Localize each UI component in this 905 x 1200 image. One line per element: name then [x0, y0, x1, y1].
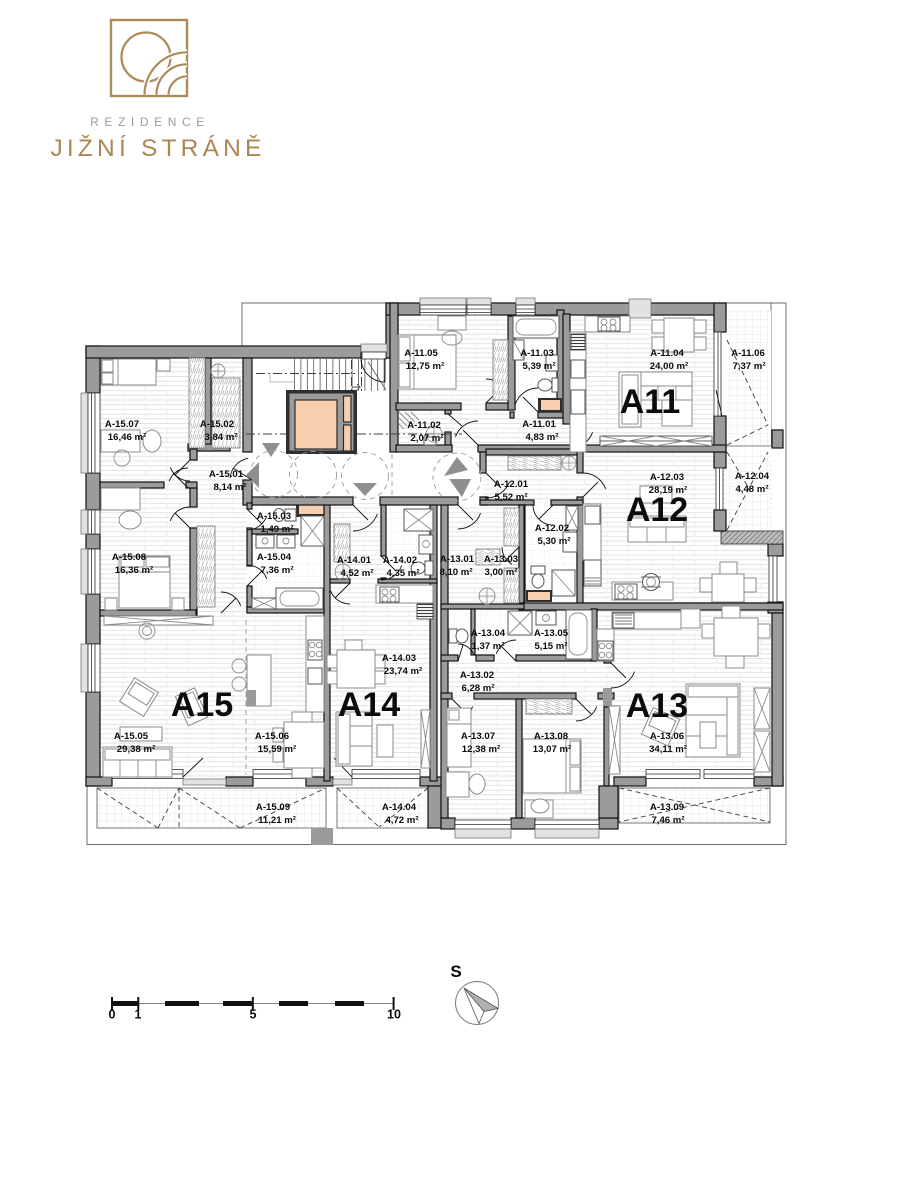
svg-text:A-13.02: A-13.02: [460, 670, 494, 681]
svg-text:16,36 m²: 16,36 m²: [115, 565, 153, 576]
svg-text:S: S: [450, 962, 461, 981]
svg-text:4,72 m²: 4,72 m²: [385, 815, 418, 826]
svg-text:A-14.04: A-14.04: [382, 802, 417, 813]
svg-text:11,21 m²: 11,21 m²: [258, 815, 296, 826]
svg-text:JIŽNÍ STRÁNĚ: JIŽNÍ STRÁNĚ: [50, 135, 265, 162]
svg-text:29,38 m²: 29,38 m²: [117, 744, 155, 755]
svg-text:4,35 m²: 4,35 m²: [386, 568, 419, 579]
svg-text:A-12.02: A-12.02: [535, 523, 569, 534]
svg-text:4,52 m²: 4,52 m²: [340, 568, 373, 579]
svg-text:1: 1: [135, 1008, 142, 1022]
svg-text:A-15.04: A-15.04: [257, 552, 292, 563]
svg-text:A-14.01: A-14.01: [337, 555, 372, 566]
svg-text:8,14 m²: 8,14 m²: [213, 482, 246, 493]
svg-text:A-13.09: A-13.09: [650, 802, 684, 813]
svg-text:A-11.06: A-11.06: [731, 348, 765, 359]
svg-text:A-15.06: A-15.06: [255, 731, 289, 742]
svg-text:A-13.03: A-13.03: [484, 554, 518, 565]
svg-text:A-11.04: A-11.04: [650, 348, 684, 359]
svg-text:5: 5: [250, 1008, 257, 1022]
svg-text:5,30 m²: 5,30 m²: [537, 536, 570, 547]
svg-text:A-15.02: A-15.02: [200, 419, 234, 430]
svg-text:5,39 m²: 5,39 m²: [522, 361, 555, 372]
svg-text:A12: A12: [626, 491, 688, 529]
svg-text:A-15.03: A-15.03: [257, 511, 291, 522]
svg-text:A-12.01: A-12.01: [494, 479, 529, 490]
svg-text:7,36 m²: 7,36 m²: [260, 565, 293, 576]
svg-text:7,37 m²: 7,37 m²: [732, 361, 765, 372]
svg-text:A-15.09: A-15.09: [256, 802, 290, 813]
svg-text:10: 10: [387, 1008, 401, 1022]
svg-text:A-13.08: A-13.08: [534, 731, 569, 742]
svg-text:1,37 m²: 1,37 m²: [471, 641, 504, 652]
svg-text:6,28 m²: 6,28 m²: [461, 683, 494, 694]
svg-text:A-15.07: A-15.07: [105, 419, 139, 430]
svg-text:A-13.07: A-13.07: [461, 731, 495, 742]
svg-text:16,46 m²: 16,46 m²: [108, 432, 146, 443]
svg-text:A-13.05: A-13.05: [534, 628, 569, 639]
svg-text:A-15.01: A-15.01: [209, 469, 244, 480]
svg-text:24,00 m²: 24,00 m²: [650, 361, 688, 372]
svg-text:A11: A11: [620, 383, 681, 421]
svg-text:12,38 m²: 12,38 m²: [462, 744, 500, 755]
svg-text:A13: A13: [626, 687, 688, 725]
svg-text:7,46 m²: 7,46 m²: [651, 815, 684, 826]
svg-text:A-11.02: A-11.02: [407, 420, 441, 431]
svg-text:3,00 m²: 3,00 m²: [484, 567, 517, 578]
svg-text:A-12.03: A-12.03: [650, 472, 684, 483]
svg-text:23,74 m²: 23,74 m²: [384, 666, 422, 677]
svg-text:4,83 m²: 4,83 m²: [525, 432, 558, 443]
svg-text:A-14.03: A-14.03: [382, 653, 416, 664]
svg-text:A15: A15: [171, 686, 233, 724]
svg-text:2,07 m²: 2,07 m²: [410, 433, 443, 444]
svg-text:A-11.01: A-11.01: [522, 419, 556, 430]
svg-text:0: 0: [109, 1008, 116, 1022]
svg-text:A-15.05: A-15.05: [114, 731, 149, 742]
svg-text:A-13.04: A-13.04: [471, 628, 506, 639]
svg-text:4,48 m²: 4,48 m²: [735, 484, 768, 495]
svg-text:A-13.06: A-13.06: [650, 731, 684, 742]
svg-text:5,15 m²: 5,15 m²: [534, 641, 567, 652]
svg-text:A-15.08: A-15.08: [112, 552, 147, 563]
svg-text:12,75 m²: 12,75 m²: [406, 361, 444, 372]
svg-text:A-12.04: A-12.04: [735, 471, 770, 482]
svg-text:REZIDENCE: REZIDENCE: [90, 115, 210, 129]
svg-text:8,10 m²: 8,10 m²: [439, 567, 472, 578]
svg-text:A-11.03: A-11.03: [520, 348, 554, 359]
svg-text:15,59 m²: 15,59 m²: [258, 744, 296, 755]
svg-text:13,07 m²: 13,07 m²: [533, 744, 571, 755]
svg-text:A14: A14: [338, 686, 400, 724]
svg-text:5,52 m²: 5,52 m²: [494, 492, 527, 503]
svg-text:A-11.05: A-11.05: [404, 348, 438, 359]
svg-text:A-14.02: A-14.02: [383, 555, 417, 566]
svg-text:3,84 m²: 3,84 m²: [204, 432, 237, 443]
svg-text:A-13.01: A-13.01: [440, 554, 475, 565]
svg-text:1,49 m²: 1,49 m²: [260, 524, 293, 535]
svg-text:34,11 m²: 34,11 m²: [649, 744, 687, 755]
